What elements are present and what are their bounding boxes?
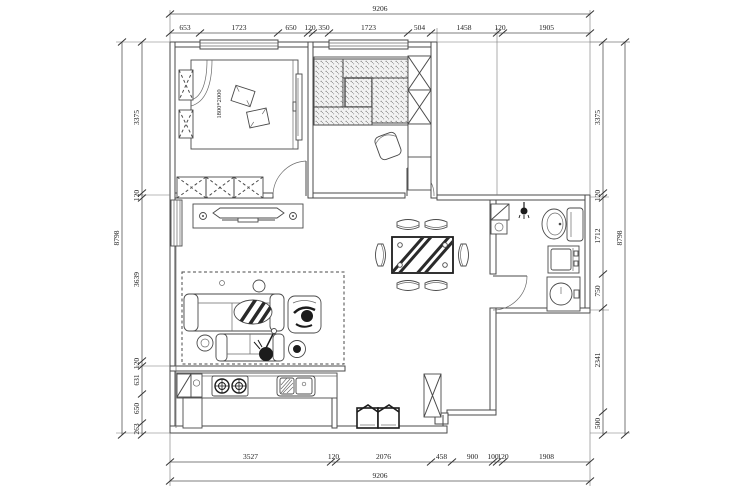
corner-shelf [491, 204, 509, 220]
dining-set [376, 220, 469, 291]
wall-bottom [170, 426, 447, 433]
tv-cabinet [193, 204, 303, 228]
wardrobe [177, 177, 263, 198]
storage-column [408, 56, 431, 190]
dim-text: 350 [318, 23, 330, 32]
dim-text: 631 [132, 374, 141, 386]
entry-furniture [357, 374, 441, 428]
wall-kitchen-north [170, 366, 345, 371]
living-room-furniture [171, 200, 344, 364]
pillow [247, 108, 270, 128]
dim-bottom-overall: 9206 [166, 471, 594, 485]
nightstand [179, 110, 193, 138]
dim-left-overall: 8798 [112, 39, 126, 439]
dim-text: 120 [132, 190, 141, 202]
dining-chair [425, 220, 447, 230]
dim-text: 3375 [593, 110, 602, 125]
dining-table [390, 235, 455, 279]
floorplan-drawing: 1800*2000 [0, 0, 740, 500]
shoe-cabinet [357, 405, 399, 428]
dim-bottom-chain: 3527 120 2076 458 900 100 120 1908 [166, 452, 594, 466]
dim-text: 500 [593, 418, 602, 430]
dim-right-chain: 3375 120 1712 750 2341 500 [593, 39, 607, 439]
dim-top-overall: 9206 [166, 4, 594, 18]
dim-left-chain: 3375 120 3639 120 631 650 263 [132, 39, 146, 439]
dim-text: 504 [414, 23, 426, 32]
bedroom-door-swing [273, 161, 306, 196]
window-bedroom [200, 40, 278, 49]
dim-text: 8798 [615, 230, 624, 245]
dim-text: 120 [497, 452, 509, 461]
dining-chair [397, 220, 419, 230]
desk-chair [374, 131, 403, 161]
tv [213, 208, 284, 222]
dim-text: 120 [328, 452, 340, 461]
washing-machine [548, 246, 579, 273]
dim-text: 900 [467, 452, 479, 461]
wall-study-south [313, 193, 405, 198]
dim-text: 458 [436, 452, 448, 461]
dim-text: 1908 [539, 452, 554, 461]
dim-text: 120 [132, 358, 141, 370]
floorplan-canvas: 1800*2000 [0, 0, 740, 500]
dim-text: 3375 [132, 110, 141, 125]
armchair [288, 296, 321, 333]
dim-text: 120 [593, 190, 602, 202]
dim-text: 3527 [243, 452, 258, 461]
washbasin [547, 277, 580, 311]
radiator [171, 200, 182, 246]
dim-text: 9206 [373, 4, 388, 13]
dim-text: 1723 [361, 23, 376, 32]
dim-text: 1458 [457, 23, 472, 32]
wall-bath-north [437, 195, 590, 200]
dim-text: 2076 [376, 452, 391, 461]
dim-text: 120 [304, 23, 316, 32]
dim-top-chain: 653 1723 650 120 350 1723 504 1458 120 1… [166, 23, 594, 37]
gas-stove [212, 376, 248, 396]
decor-dot [220, 281, 225, 286]
dining-chair [376, 244, 386, 266]
dim-text: 1905 [539, 23, 554, 32]
dim-text: 650 [132, 403, 141, 415]
dim-text: 120 [494, 23, 506, 32]
dim-text: 1723 [232, 23, 247, 32]
entry-cabinet [424, 374, 441, 417]
stool [289, 341, 306, 358]
dim-text: 3639 [132, 272, 141, 287]
loveseat [216, 334, 284, 361]
bedroom-furniture: 1800*2000 [177, 60, 302, 198]
dim-text: 9206 [373, 471, 388, 480]
wall-study-east [431, 42, 437, 198]
study-furniture [314, 56, 431, 190]
dim-text: 650 [285, 23, 297, 32]
toilet [542, 208, 583, 241]
tatami-bed [314, 57, 408, 125]
side-table [197, 335, 213, 351]
nightstand [179, 70, 193, 100]
dim-right-overall: 8798 [615, 39, 629, 439]
wall-hall-east [490, 308, 496, 410]
dim-text: 653 [179, 23, 191, 32]
dim-text: 8798 [112, 230, 121, 245]
dining-chair [397, 281, 419, 291]
wall-entry-south [447, 410, 496, 415]
window-study [329, 40, 408, 49]
wall-bed-study-divider [308, 42, 313, 198]
double-bed: 1800*2000 [191, 60, 298, 149]
kitchen-sink [277, 376, 315, 396]
wall-bath-east [585, 195, 590, 313]
fridge-cabinet [177, 374, 202, 428]
floor-drain [491, 220, 507, 234]
dim-text: 750 [593, 285, 602, 297]
dining-chair [425, 281, 447, 291]
decor-circle [253, 280, 265, 292]
dim-text: 1712 [593, 228, 602, 243]
bed-size-label: 1800*2000 [216, 89, 223, 118]
dim-text: 263 [132, 423, 141, 435]
dim-text: 2341 [593, 352, 602, 367]
bathroom-door-swing [493, 276, 527, 310]
kitchen-furniture [177, 373, 337, 428]
dining-chair [459, 244, 469, 266]
bathroom-fixtures [491, 202, 583, 311]
shower-head [519, 202, 529, 219]
